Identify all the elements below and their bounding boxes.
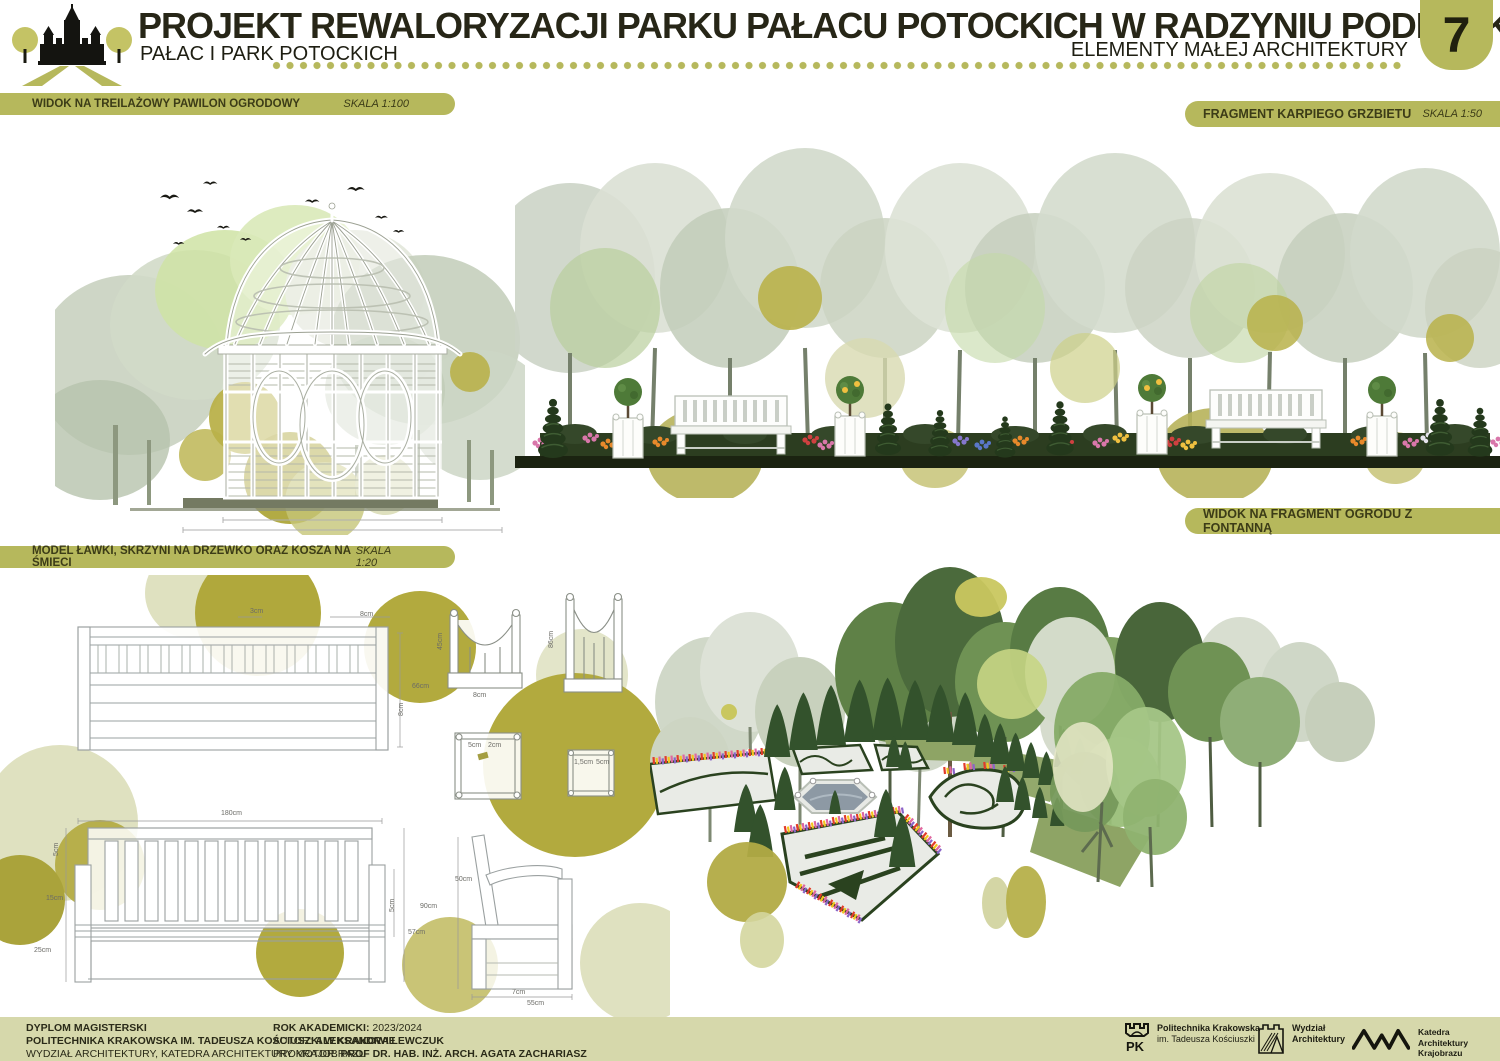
section-bar-furniture: MODEL ŁAWKI, SKRZYNI NA DRZEWKO ORAZ KOS… xyxy=(0,546,455,568)
footer-academic-year: ROK AKADEMICKI: 2023/2024 xyxy=(273,1022,587,1035)
dim-bench-top-slat-gap: 3cm xyxy=(250,608,263,615)
sheet-subject: ELEMENTY MAŁEJ ARCHITEKTURY xyxy=(1071,39,1408,62)
furniture-drawings xyxy=(0,575,670,1017)
wa-logo-block: Wydział Architektury xyxy=(1258,1023,1345,1054)
academic-year-label: ROK AKADEMICKI: xyxy=(273,1022,369,1034)
dotted-divider xyxy=(272,61,1406,70)
kak-logo-text: Katedra Architektury Krajobrazu xyxy=(1418,1027,1468,1059)
promoter-label: PROMOTOR: xyxy=(273,1048,338,1060)
section-title: WIDOK NA FRAGMENT OGRODU Z FONTANNĄ xyxy=(1203,507,1482,535)
dim-bench-top-edge: 8cm xyxy=(398,703,405,716)
kak-logo-icon xyxy=(1352,1027,1410,1051)
dim-bench-front-seath: 57cm xyxy=(408,929,425,936)
poster: PROJEKT REWALORYZACJI PARKU PAŁACU POTOC… xyxy=(0,0,1500,1061)
bench-front-view xyxy=(66,818,404,982)
kak-name3: Krajobrazu xyxy=(1418,1048,1468,1059)
footer-author-block: ROK AKADEMICKI: 2023/2024 AUTOR: ALEKSAN… xyxy=(273,1022,587,1061)
wa-name: Wydział xyxy=(1292,1023,1345,1034)
academic-year-value: 2023/2024 xyxy=(372,1022,422,1034)
kak-name: Katedra xyxy=(1418,1027,1468,1038)
section-bar-carp-back: FRAGMENT KARPIEGO GRZBIETU SKALA 1:50 xyxy=(1185,101,1500,127)
pk-name: Politechnika Krakowska xyxy=(1157,1023,1260,1034)
gazebo-dome xyxy=(205,203,460,354)
dim-bench-front-sideh: 5cm xyxy=(389,899,396,912)
footer-promoter: PROMOTOR: PROF DR. HAB. INŻ. ARCH. AGATA… xyxy=(273,1048,587,1061)
dim-bench-front-hmid: 15cm xyxy=(46,895,63,902)
dim-bench-side-depth: 55cm xyxy=(527,1000,544,1007)
dim-plan-small-b: 5cm xyxy=(596,759,609,766)
parterre-beds xyxy=(650,745,1025,920)
section-title: MODEL ŁAWKI, SKRZYNI NA DRZEWKO ORAZ KOS… xyxy=(32,545,356,569)
dim-plan-small-a: 1,5cm xyxy=(574,759,593,766)
carp-back-illustration xyxy=(515,138,1500,498)
wa-logo-icon xyxy=(1258,1023,1284,1054)
bench-top-view xyxy=(78,617,403,750)
pavilion-illustration xyxy=(55,140,525,535)
palace-park-logo xyxy=(10,4,134,86)
section-bar-pavilion: WIDOK NA TREILAŻOWY PAWILON OGRODOWY SKA… xyxy=(0,93,455,115)
dim-plan-large-a: 5cm xyxy=(468,742,481,749)
dim-planter-small-height: 45cm xyxy=(437,633,444,650)
section-scale: SKALA 1:20 xyxy=(356,545,409,569)
planter-plan-small xyxy=(568,750,614,796)
bench-side-view xyxy=(458,835,572,1000)
section-title: FRAGMENT KARPIEGO GRZBIETU xyxy=(1203,107,1411,121)
castle-silhouette xyxy=(38,4,106,65)
section-bar-fountain-view: WIDOK NA FRAGMENT OGRODU Z FONTANNĄ xyxy=(1185,508,1500,534)
kak-name2: Architektury xyxy=(1418,1038,1468,1049)
svg-text:PK: PK xyxy=(1126,1039,1145,1054)
pk-name2: im. Tadeusza Kościuszki xyxy=(1157,1034,1260,1045)
pk-logo-text: Politechnika Krakowska im. Tadeusza Kośc… xyxy=(1157,1023,1260,1046)
dim-bench-top-slat-w: 8cm xyxy=(360,611,373,618)
dim-bench-side-leg: 7cm xyxy=(512,989,525,996)
pk-logo-block: PK Politechnika Krakowska im. Tadeusza K… xyxy=(1125,1023,1260,1054)
footer-band: DYPLOM MAGISTERSKI POLITECHNIKA KRAKOWSK… xyxy=(0,1017,1500,1061)
palace-logo-graphic xyxy=(10,4,134,86)
wa-name2: Architektury xyxy=(1292,1034,1345,1045)
author-value: ALEKSANDRA LEWCZUK xyxy=(315,1035,444,1047)
section-scale: SKALA 1:50 xyxy=(1422,108,1482,120)
section-scale: SKALA 1:100 xyxy=(343,98,409,110)
dim-bench-front-hlow: 25cm xyxy=(34,947,51,954)
dim-bench-front-width: 180cm xyxy=(221,810,242,817)
section-title: WIDOK NA TREILAŻOWY PAWILON OGRODOWY xyxy=(32,98,300,110)
promoter-value: PROF DR. HAB. INŻ. ARCH. AGATA ZACHARIAS… xyxy=(340,1048,586,1060)
dim-bench-top-depth: 66cm xyxy=(412,683,429,690)
dim-bench-front-height: 90cm xyxy=(420,903,437,910)
wa-logo-text: Wydział Architektury xyxy=(1292,1023,1345,1046)
footer-author: AUTOR: ALEKSANDRA LEWCZUK xyxy=(273,1035,587,1048)
dim-plan-large-b: 2cm xyxy=(488,742,501,749)
dim-planter-large-height: 86cm xyxy=(548,631,555,648)
dim-bench-side-back: 50cm xyxy=(455,876,472,883)
author-label: AUTOR: xyxy=(273,1035,312,1047)
dim-planter-small-base: 8cm xyxy=(473,692,486,699)
pk-logo-icon: PK xyxy=(1125,1023,1149,1054)
background-trees xyxy=(515,148,1500,443)
fountain-garden-illustration xyxy=(650,552,1500,1017)
sheet-number-badge: 7 xyxy=(1420,0,1493,70)
kak-logo-block: Katedra Architektury Krajobrazu xyxy=(1352,1027,1468,1059)
dim-bench-front-htop: 5cm xyxy=(53,843,60,856)
